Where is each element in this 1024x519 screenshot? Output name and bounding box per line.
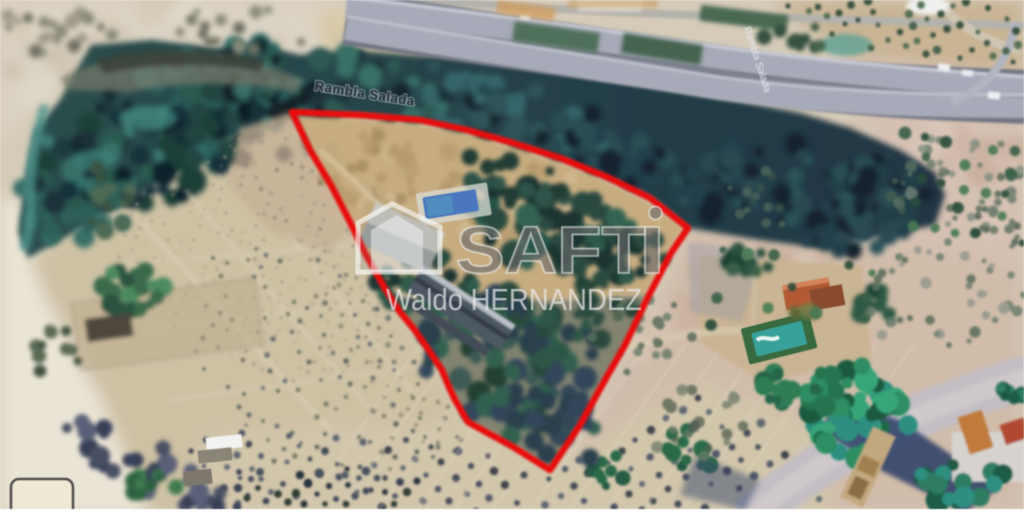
svg-text:Waldo HERNANDEZ: Waldo HERNANDEZ <box>386 282 642 317</box>
svg-text:SAFT: SAFT <box>456 213 646 288</box>
